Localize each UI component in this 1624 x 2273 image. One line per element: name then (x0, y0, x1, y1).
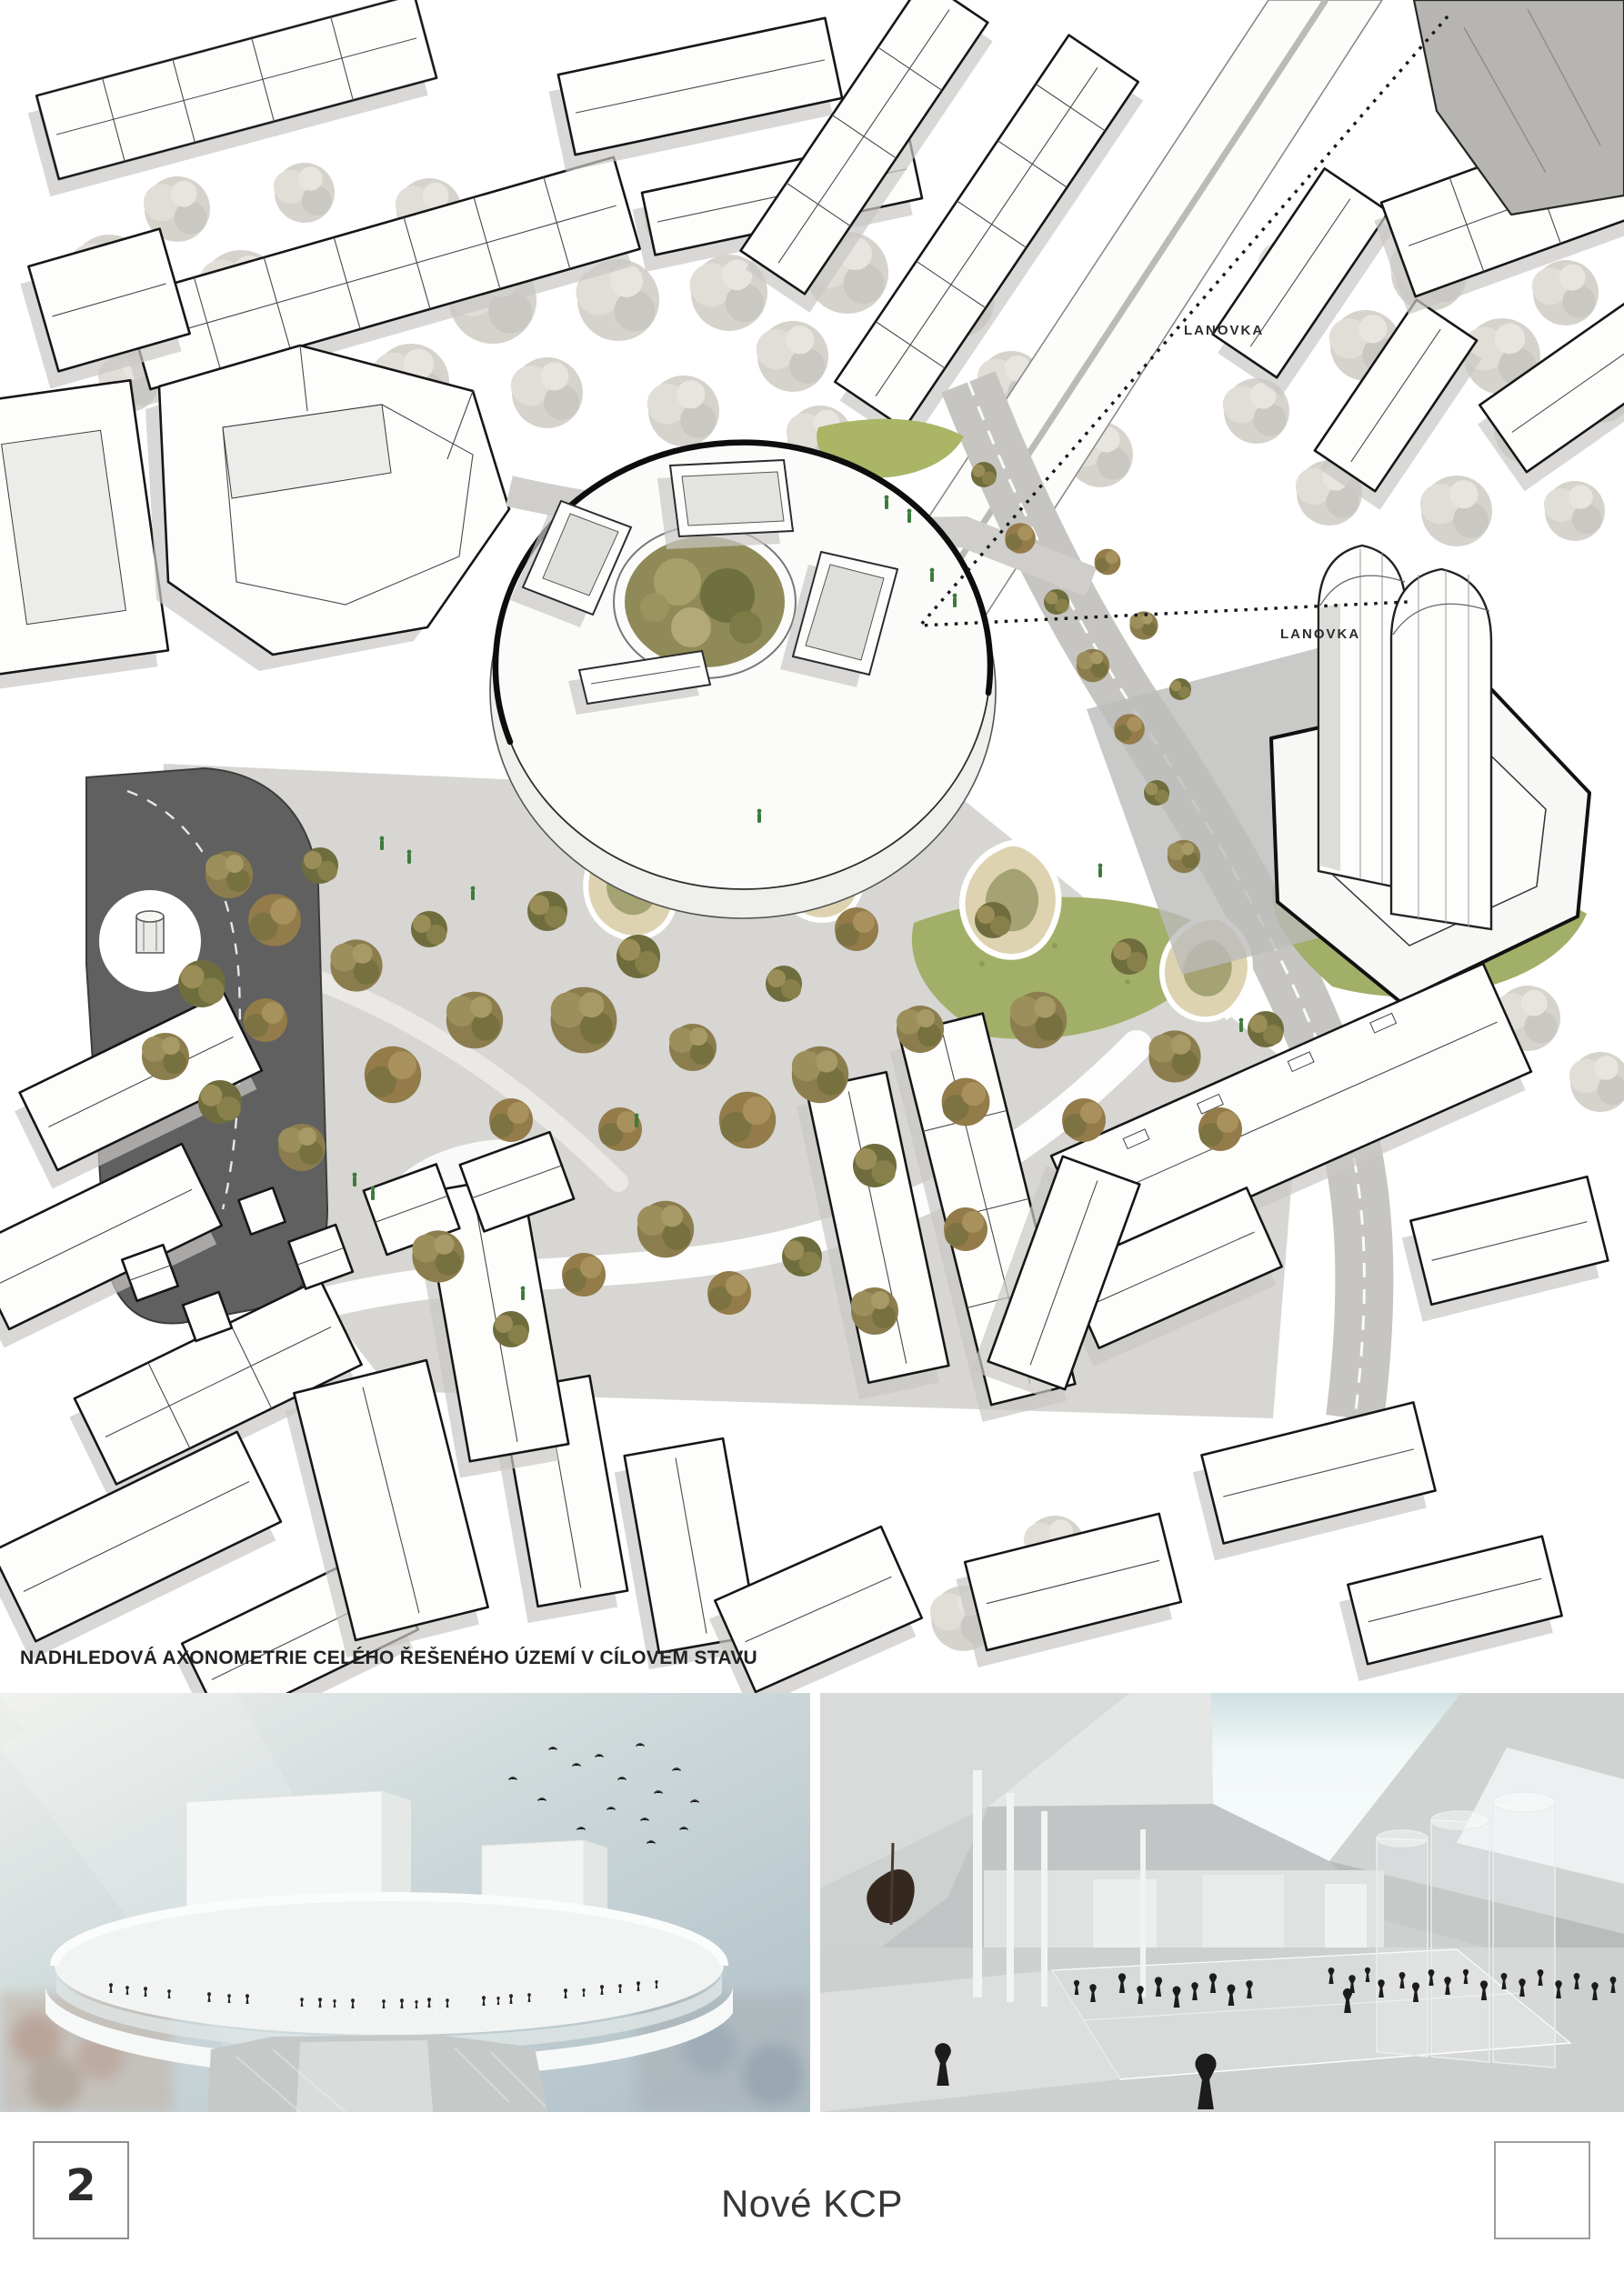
lanovka-label-upper: LANOVKA (1184, 323, 1264, 338)
drawing-caption: NADHLEDOVÁ AXONOMETRIE CELÉHO ŘEŠENÉHO Ú… (20, 1647, 757, 1669)
empty-marker-box (1494, 2141, 1590, 2239)
render-exterior-view (0, 1693, 810, 2112)
disc-garden (625, 536, 785, 667)
glass-cylinders (1377, 1792, 1555, 2068)
lanovka-label-lower: LANOVKA (1280, 626, 1360, 642)
presentation-page: LANOVKA LANOVKA NADHLEDOVÁ AXONOMETRIE C… (0, 0, 1624, 2273)
vent-cylinder-icon (136, 911, 164, 953)
pavilion-base (207, 2035, 547, 2112)
axonometric-drawing: LANOVKA LANOVKA NADHLEDOVÁ AXONOMETRIE C… (0, 0, 1624, 1693)
project-title: Nové KCP (0, 2182, 1624, 2226)
kcp-disc-building (490, 442, 996, 918)
render-interior-view (820, 1693, 1624, 2112)
